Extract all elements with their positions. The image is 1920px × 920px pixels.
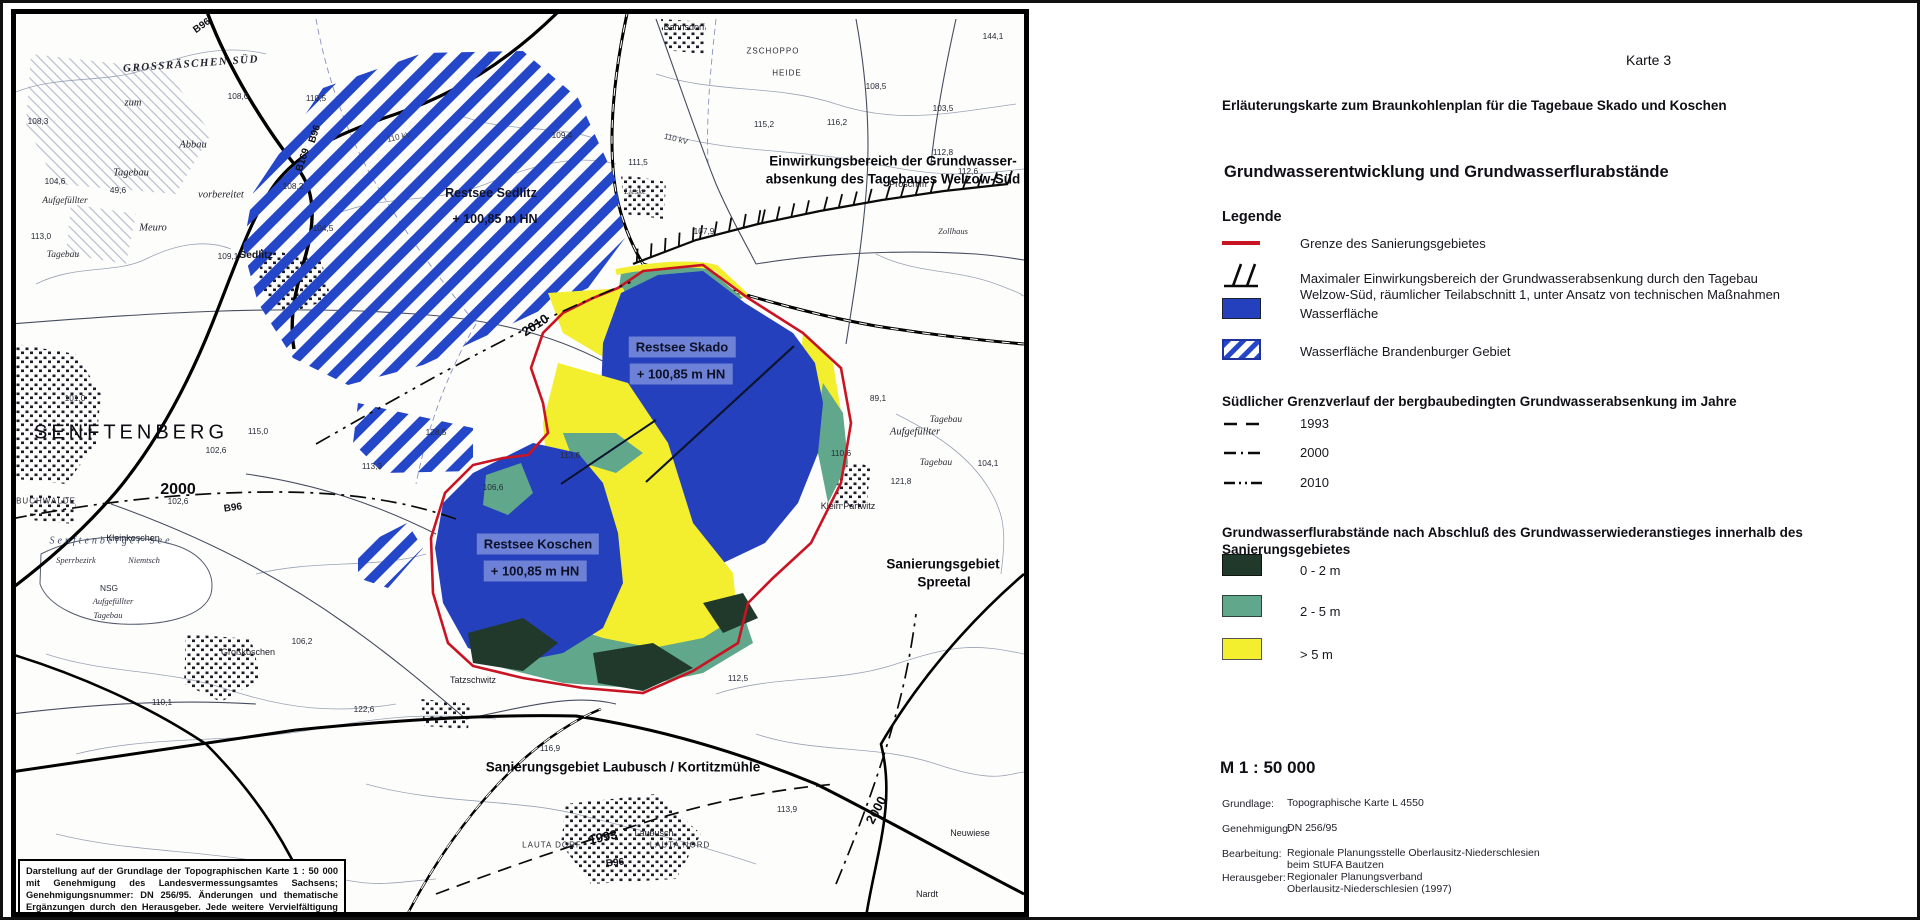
legend-depth-0-2: 0 - 2 m: [1300, 563, 1340, 578]
sheet-number: Karte 3: [1626, 52, 1671, 68]
legend-year-2010: 2010: [1300, 475, 1329, 490]
credit-key: Genehmigung:: [1222, 823, 1291, 835]
depth-2-5-swatch: [1222, 595, 1262, 617]
legend-item-grenze: Grenze des Sanierungsgebietes: [1300, 236, 1486, 251]
legend-year-2000: 2000: [1300, 445, 1329, 460]
map-panel: SENFTENBERGSedlitzGROSSRÄSCHEN SÜDBahnsd…: [11, 9, 1029, 917]
legend-year-1993: 1993: [1300, 416, 1329, 431]
legend-depth-gt5: > 5 m: [1300, 647, 1333, 662]
credit-value: DN 256/95: [1287, 823, 1337, 835]
credit-value: Topographische Karte L 4550: [1287, 798, 1424, 810]
legend-item-einwirkungsbereich: Maximaler Einwirkungsbereich der Grundwa…: [1300, 271, 1780, 303]
topographic-map: [16, 14, 1024, 912]
einwirkung-line2: Welzow-Süd, räumlicher Teilabschnitt 1, …: [1300, 287, 1780, 303]
water-swatch: [1222, 298, 1261, 319]
credit-key: Grundlage:: [1222, 798, 1274, 810]
dash-1993-icon: [1222, 417, 1264, 435]
depth-gt5-swatch: [1222, 638, 1262, 660]
copyright-disclaimer-box: Darstellung auf der Grundlage der Topogr…: [18, 859, 346, 917]
red-line-swatch: [1222, 241, 1260, 245]
einwirkung-line1: Maximaler Einwirkungsbereich der Grundwa…: [1300, 271, 1780, 287]
south-boundary-heading: Südlicher Grenzverlauf der bergbaubeding…: [1222, 394, 1737, 409]
flur-line1: Grundwasserflurabstände nach Abschluß de…: [1222, 524, 1803, 541]
hatch-boundary-icon: [1222, 261, 1262, 294]
scale-label: M 1 : 50 000: [1220, 758, 1315, 778]
opencast-area: [66, 204, 136, 264]
depth-0-2-swatch: [1222, 554, 1262, 576]
dash-2000-icon: [1222, 446, 1264, 464]
credit-key: Bearbeitung:: [1222, 848, 1282, 860]
credit-value-line: Oberlausitz-Niederschlesien (1997): [1287, 884, 1452, 896]
credit-value-line: beim StUFA Bautzen: [1287, 860, 1540, 872]
credit-value: Regionaler Planungsverband Oberlausitz-N…: [1287, 872, 1452, 895]
dash-2010-icon: [1222, 476, 1264, 494]
credit-value-line: DN 256/95: [1287, 823, 1337, 835]
legend-panel: Karte 3 Erläuterungskarte zum Braunkohle…: [1029, 3, 1917, 917]
credit-value-line: Topographische Karte L 4550: [1287, 798, 1424, 810]
legend-item-wasserflaeche: Wasserfläche: [1300, 306, 1378, 321]
legend-item-wasserflaeche-brandenburg: Wasserfläche Brandenburger Gebiet: [1300, 344, 1511, 359]
legend-depth-2-5: 2 - 5 m: [1300, 604, 1340, 619]
water-hatch-swatch: [1222, 339, 1261, 360]
map-subtitle: Erläuterungskarte zum Braunkohlenplan fü…: [1222, 98, 1727, 113]
flurabstaende-heading: Grundwasserflurabstände nach Abschluß de…: [1222, 524, 1803, 558]
map-title: Grundwasserentwicklung und Grundwasserfl…: [1224, 163, 1669, 182]
screenshot-frame: SENFTENBERGSedlitzGROSSRÄSCHEN SÜDBahnsd…: [0, 0, 1920, 920]
credit-value-line: Regionale Planungsstelle Oberlausitz-Nie…: [1287, 848, 1540, 860]
legend-heading: Legende: [1222, 209, 1282, 225]
credit-value-line: Regionaler Planungsverband: [1287, 872, 1452, 884]
credit-value: Regionale Planungsstelle Oberlausitz-Nie…: [1287, 848, 1540, 871]
flur-line2: Sanierungsgebietes: [1222, 541, 1803, 558]
credit-key: Herausgeber:: [1222, 872, 1286, 884]
